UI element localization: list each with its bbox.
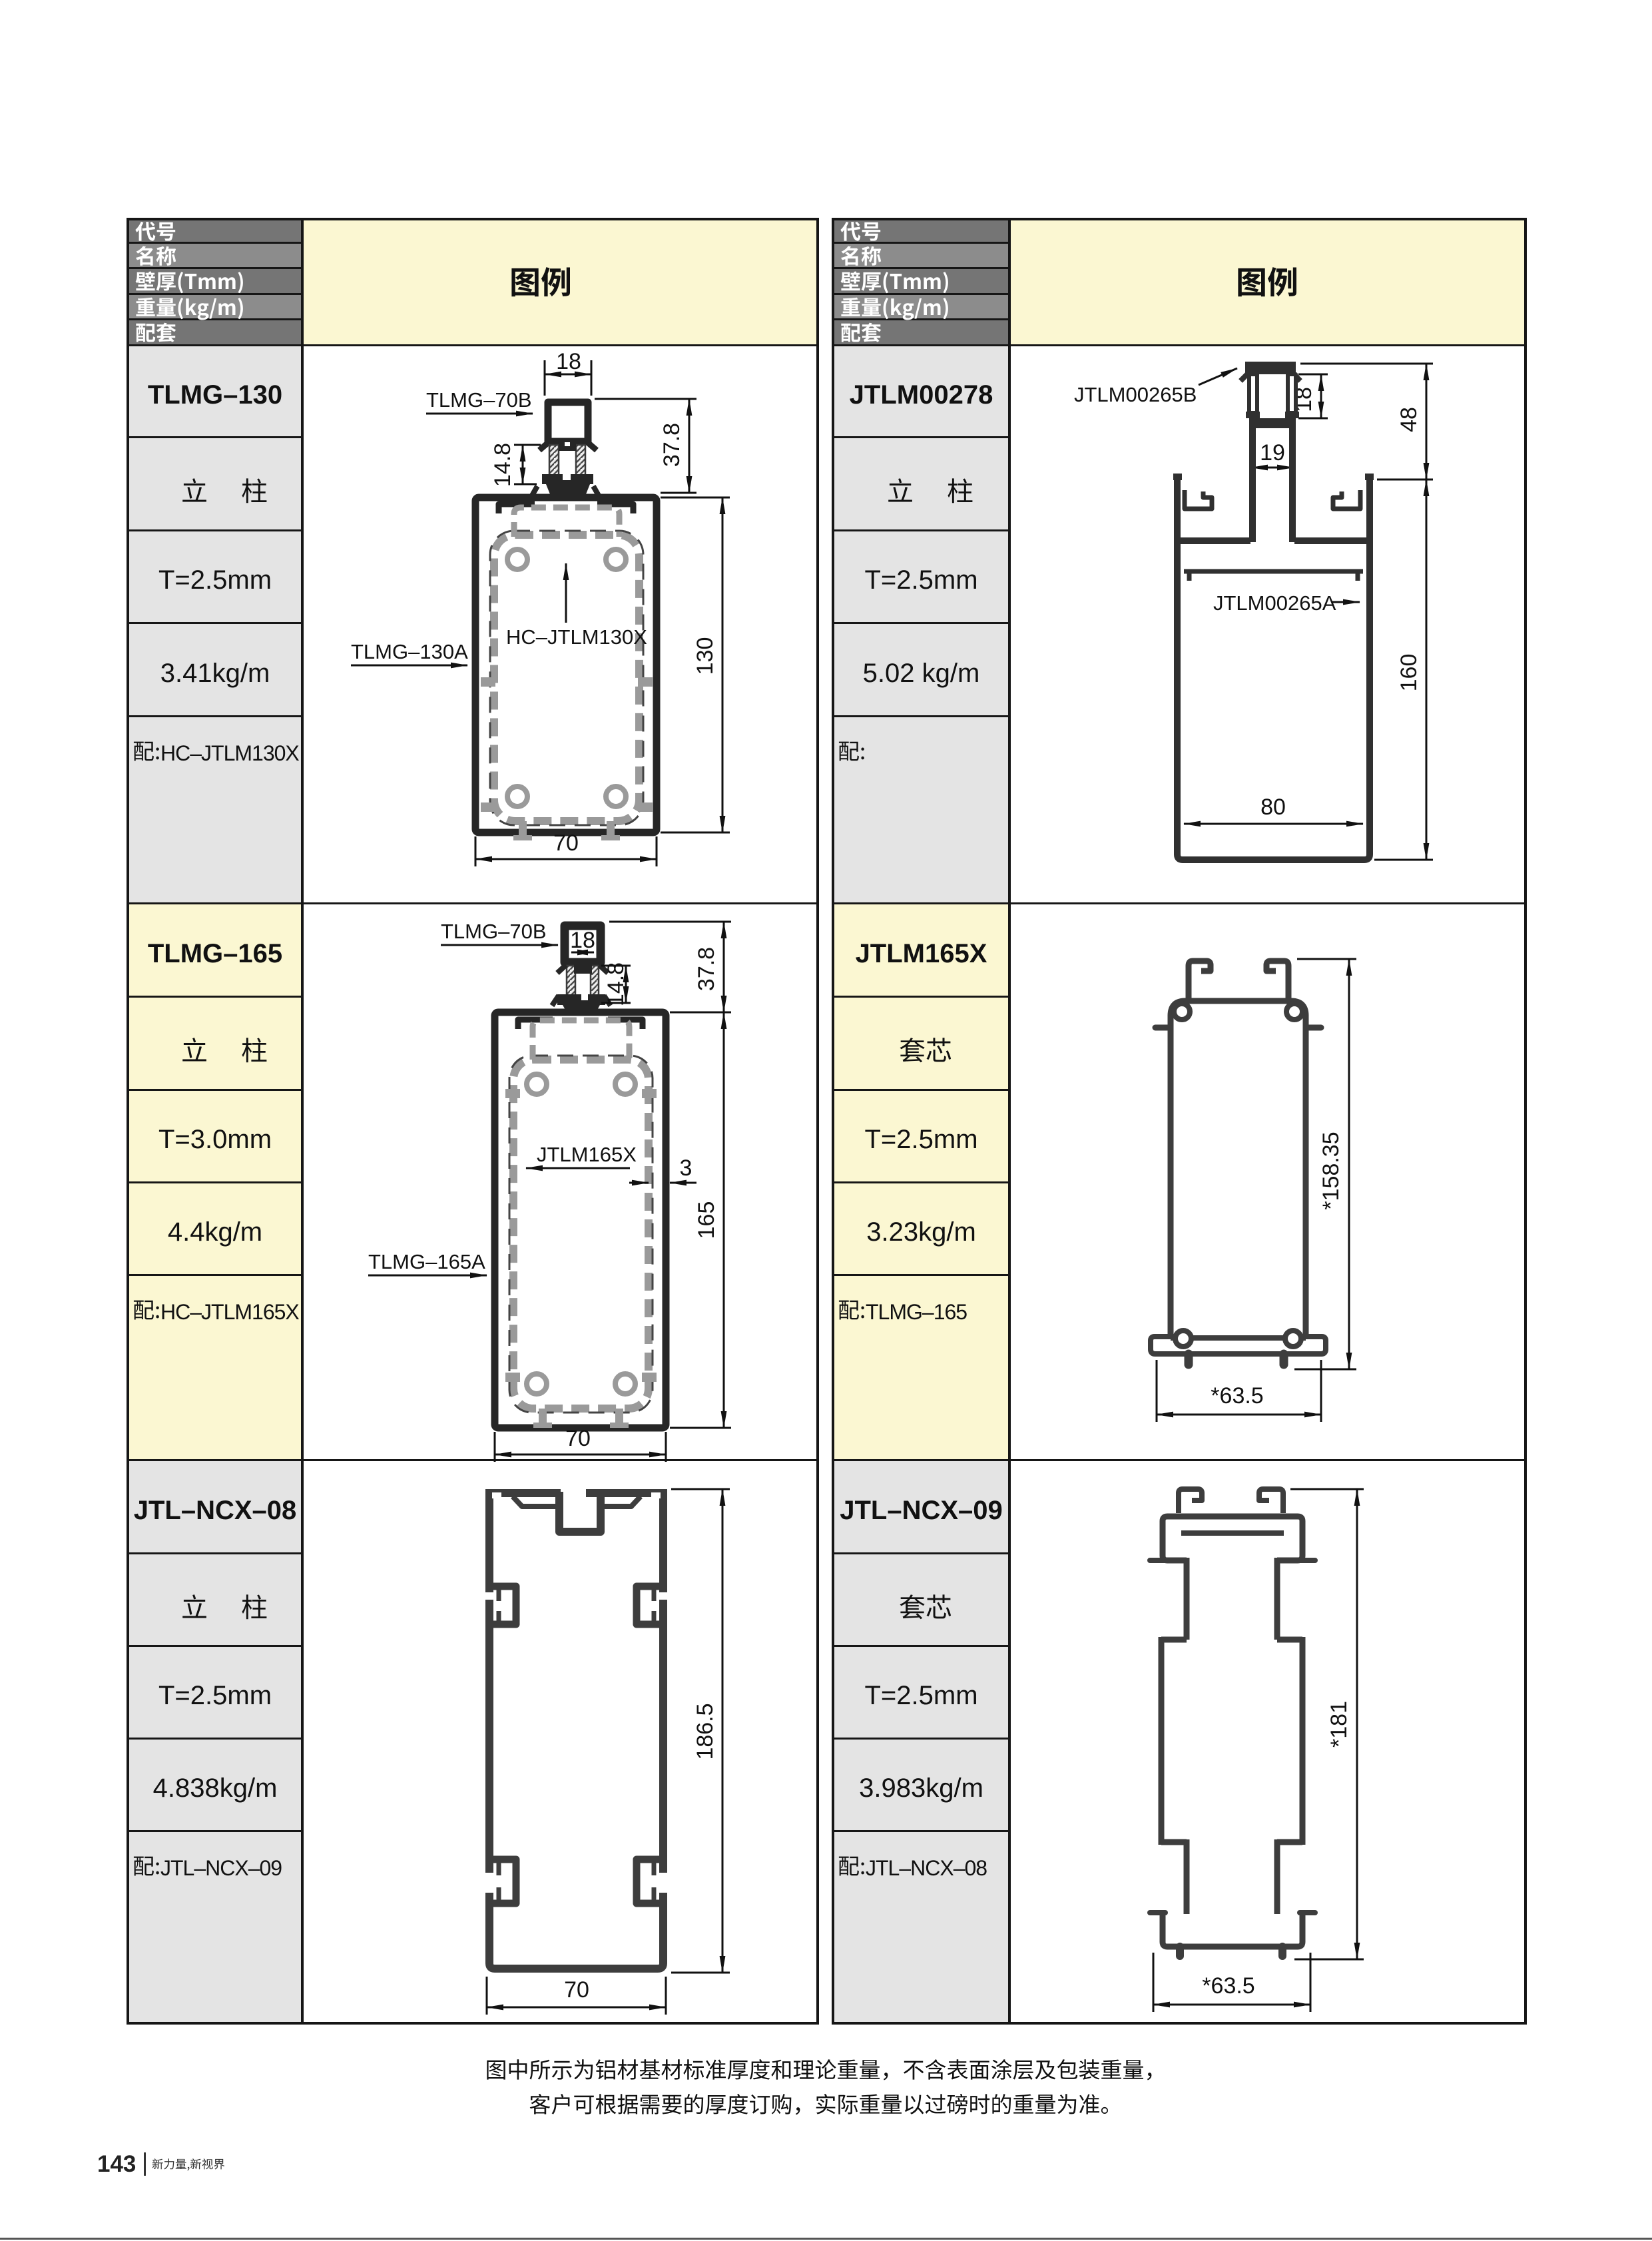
svg-text:18: 18 xyxy=(556,349,581,374)
svg-text:165: 165 xyxy=(694,1201,719,1239)
svg-text:JTLM00265A: JTLM00265A xyxy=(1213,591,1336,615)
svg-text:70: 70 xyxy=(565,1426,591,1451)
svg-text:186.5: 186.5 xyxy=(692,1703,718,1760)
svg-text:130: 130 xyxy=(692,637,718,675)
svg-text:18: 18 xyxy=(570,928,595,953)
svg-text:37.8: 37.8 xyxy=(694,947,719,991)
svg-text:14.8: 14.8 xyxy=(603,962,629,1006)
svg-text:19: 19 xyxy=(1260,440,1285,466)
svg-text:TLMG–165A: TLMG–165A xyxy=(368,1250,485,1273)
svg-text:*63.5: *63.5 xyxy=(1211,1383,1263,1409)
svg-text:TLMG–70B: TLMG–70B xyxy=(426,388,532,412)
svg-text:14.8: 14.8 xyxy=(490,443,515,487)
svg-text:*181: *181 xyxy=(1326,1701,1352,1748)
svg-text:TLMG–70B: TLMG–70B xyxy=(441,920,547,943)
svg-text:80: 80 xyxy=(1260,795,1286,820)
svg-text:160: 160 xyxy=(1396,654,1422,692)
svg-text:70: 70 xyxy=(564,1977,589,2003)
svg-text:HC–JTLM130X: HC–JTLM130X xyxy=(506,625,647,649)
svg-text:48: 48 xyxy=(1396,407,1422,432)
svg-text:JTLM165X: JTLM165X xyxy=(537,1143,637,1166)
svg-text:TLMG–130A: TLMG–130A xyxy=(351,640,468,663)
svg-text:70: 70 xyxy=(553,830,579,856)
svg-text:3: 3 xyxy=(680,1155,692,1181)
svg-text:*63.5: *63.5 xyxy=(1202,1973,1254,1999)
svg-text:JTLM00265B: JTLM00265B xyxy=(1074,383,1197,406)
svg-text:37.8: 37.8 xyxy=(659,423,685,467)
svg-text:*158.35: *158.35 xyxy=(1318,1131,1344,1209)
